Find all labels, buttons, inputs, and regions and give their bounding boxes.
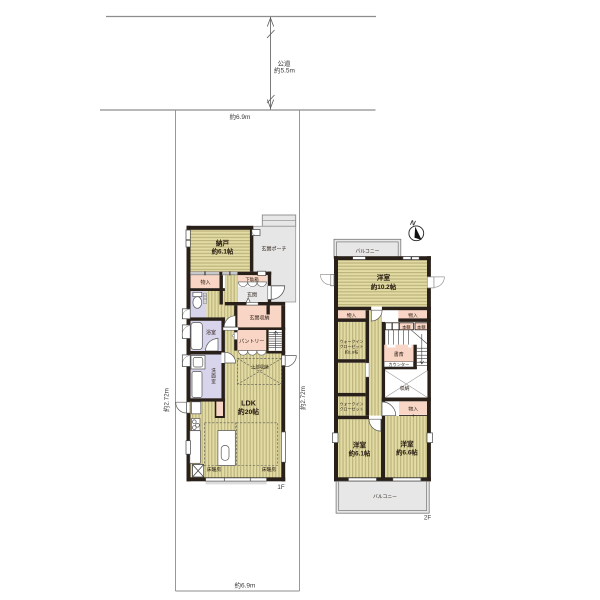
svg-text:バルコニー: バルコニー xyxy=(356,249,380,255)
svg-text:玄関ポーチ: 玄関ポーチ xyxy=(261,246,286,253)
svg-text:クローゼット: クローゼット xyxy=(340,343,364,349)
svg-text:カウンター: カウンター xyxy=(388,361,409,368)
svg-text:ウォークイン: ウォークイン xyxy=(340,338,364,344)
svg-text:1F: 1F xyxy=(277,484,284,491)
svg-text:約2.72m: 約2.72m xyxy=(298,386,307,410)
svg-text:物入: 物入 xyxy=(347,312,357,319)
svg-text:収納: 収納 xyxy=(399,385,409,392)
svg-text:約6.9m: 約6.9m xyxy=(230,112,251,121)
svg-text:約10.2帖: 約10.2帖 xyxy=(371,282,397,291)
svg-text:上部収納: 上部収納 xyxy=(251,364,269,371)
svg-text:書斎: 書斎 xyxy=(394,351,404,358)
svg-text:玄関: 玄関 xyxy=(247,292,257,299)
svg-text:パントリー: パントリー xyxy=(239,339,264,345)
svg-text:バルコニー: バルコニー xyxy=(373,494,397,500)
svg-text:床暖房: 床暖房 xyxy=(262,466,277,473)
svg-text:室: 室 xyxy=(211,378,216,384)
svg-text:床暖房: 床暖房 xyxy=(207,466,222,473)
svg-text:物入: 物入 xyxy=(408,406,418,413)
svg-text:約6.6帖: 約6.6帖 xyxy=(396,448,418,457)
svg-text:洋室: 洋室 xyxy=(353,441,367,450)
svg-text:約2.72m: 約2.72m xyxy=(162,388,171,412)
svg-text:公道: 公道 xyxy=(278,59,292,68)
svg-text:洋室: 洋室 xyxy=(400,440,414,449)
svg-text:物入: 物入 xyxy=(408,312,418,319)
svg-text:本棚: 本棚 xyxy=(402,324,410,331)
svg-text:納戸: 納戸 xyxy=(216,239,230,248)
svg-text:クローゼット: クローゼット xyxy=(340,406,364,412)
svg-text:約1.6帖: 約1.6帖 xyxy=(345,348,359,354)
svg-text:本棚: 本棚 xyxy=(417,324,425,331)
svg-text:ウォークイン: ウォークイン xyxy=(340,401,364,407)
svg-text:物入: 物入 xyxy=(200,279,210,286)
svg-text:浴室: 浴室 xyxy=(206,329,216,336)
svg-text:洋室: 洋室 xyxy=(377,273,391,282)
svg-text:玄関収納: 玄関収納 xyxy=(249,315,269,322)
svg-text:約6.9m: 約6.9m xyxy=(235,581,256,590)
svg-text:約5.5m: 約5.5m xyxy=(274,66,295,75)
svg-text:LDK: LDK xyxy=(241,399,257,408)
svg-text:2F: 2F xyxy=(424,515,431,522)
svg-text:約6.1帖: 約6.1帖 xyxy=(212,247,234,256)
svg-text:約20帖: 約20帖 xyxy=(238,407,259,416)
svg-text:約6.1帖: 約6.1帖 xyxy=(349,449,371,458)
